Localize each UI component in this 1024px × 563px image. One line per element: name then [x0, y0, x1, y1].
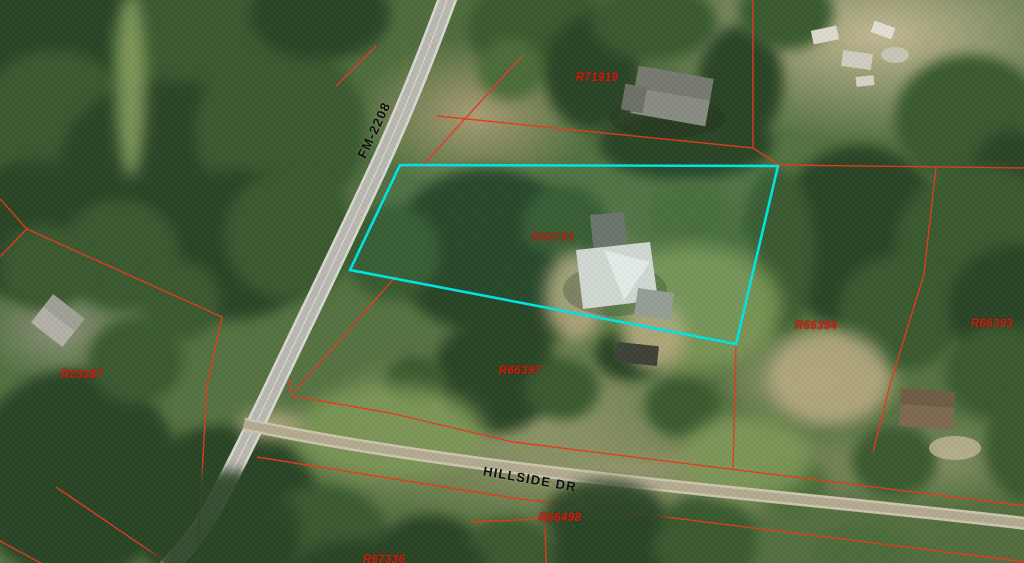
- parcel-label-r66394: R66394: [795, 320, 838, 332]
- selected-parcel-outline[interactable]: [350, 165, 778, 344]
- parcel-label-r71919: R71919: [576, 72, 619, 84]
- parcel-label-r66397: R66397: [499, 365, 542, 377]
- parcel-label-r23387: R23387: [61, 369, 104, 381]
- map-viewport[interactable]: R71919 R65793 R66394 R66393 R23387 R6639…: [0, 0, 1024, 563]
- building-bottom-right: [899, 388, 981, 460]
- parcel-label-r66498: R66498: [539, 512, 582, 524]
- parcel-label-r65793: R65793: [532, 232, 575, 244]
- debris-top-right: [811, 21, 909, 87]
- building-r23387: [31, 294, 85, 347]
- parcel-label-r66393: R66393: [971, 318, 1014, 330]
- parcel-label-r67336: R67336: [363, 554, 406, 563]
- building-r71919: [610, 64, 726, 138]
